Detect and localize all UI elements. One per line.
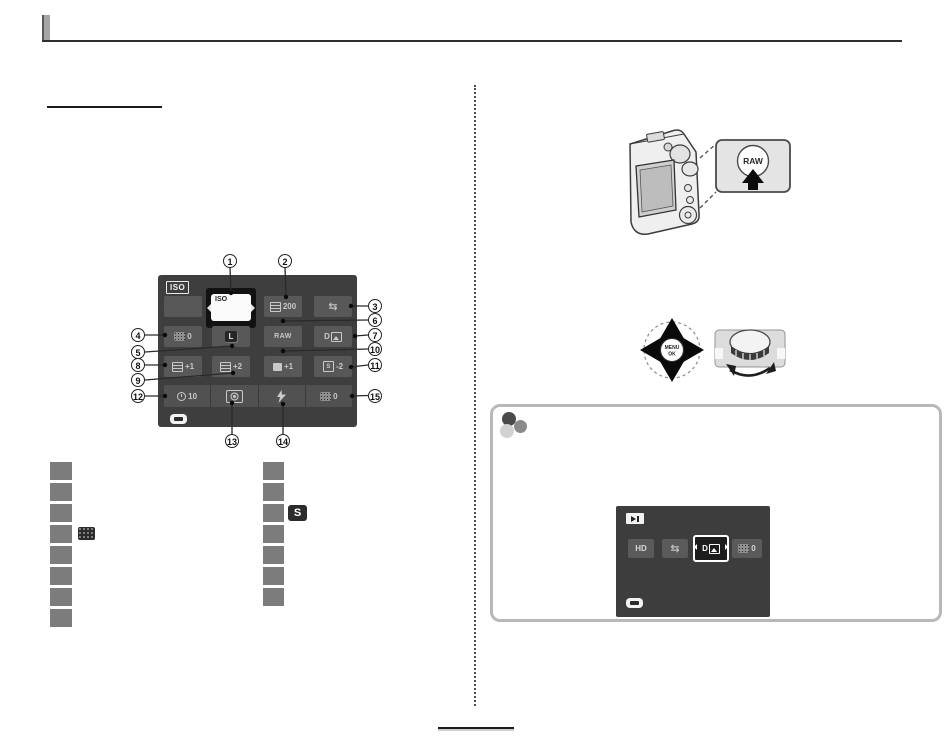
list-item-placeholder [263, 462, 284, 480]
rotate-arrow-icon [730, 368, 770, 376]
film-simulation-icon [670, 542, 679, 555]
selector-dial-figure: MENU OK [630, 310, 810, 395]
list-item-placeholder [50, 525, 72, 543]
playback-menu-screen: HD D 0 [616, 506, 770, 617]
list-item-placeholder [263, 588, 284, 606]
callout-12: 12 [131, 389, 145, 403]
noise-reduction-icon [738, 544, 749, 553]
menu-cell-grain-level: 0 [732, 539, 762, 558]
menu-cell-hd: HD [628, 539, 654, 558]
dynamic-range-icon: D [702, 544, 720, 554]
header-rule [42, 40, 902, 42]
list-item-placeholder [263, 504, 284, 522]
section-heading-underline [47, 106, 162, 108]
chapter-tab-bar [42, 15, 50, 41]
menu-ok-label-line2: OK [668, 352, 676, 358]
legend-list-right [263, 462, 284, 606]
camera-illustration [630, 130, 699, 234]
list-item-placeholder [50, 483, 72, 501]
callout-13: 13 [225, 434, 239, 448]
note-icon [500, 424, 514, 438]
list-item-placeholder [50, 462, 72, 480]
list-item-placeholder [263, 483, 284, 501]
callout-15: 15 [368, 389, 382, 403]
noise-reduction-icon [78, 527, 95, 540]
list-item-placeholder [50, 609, 72, 627]
raw-button-callout: RAW [716, 140, 790, 192]
callout-7: 7 [368, 328, 382, 342]
menu-cell-film-simulation [662, 539, 688, 558]
callout-14: 14 [276, 434, 290, 448]
left-arrow-icon [694, 544, 697, 550]
callout-dashed-lines [700, 144, 716, 208]
callout-8: 8 [131, 358, 145, 372]
callout-10: 10 [368, 342, 382, 356]
callout-11: 11 [368, 358, 382, 372]
battery-icon [626, 598, 643, 608]
callout-2: 2 [278, 254, 292, 268]
raw-button-label: RAW [743, 156, 764, 166]
menu-ok-label-line1: MENU [665, 345, 680, 351]
list-item-placeholder [263, 546, 284, 564]
list-item-placeholder [50, 588, 72, 606]
list-item-placeholder [50, 546, 72, 564]
callout-6: 6 [368, 313, 382, 327]
callout-lines [128, 250, 390, 455]
legend-list-left [50, 462, 72, 627]
note-icon [514, 420, 527, 433]
playback-mode-icon [626, 513, 644, 524]
list-item-placeholder [50, 567, 72, 585]
list-item-placeholder [50, 504, 72, 522]
command-dial-illustration [715, 330, 785, 376]
manual-page: { "figure_quick_menu": { "screen": { "is… [0, 0, 950, 741]
four-way-selector-illustration: MENU OK [640, 318, 704, 382]
callout-5: 5 [131, 345, 145, 359]
callout-3: 3 [368, 299, 382, 313]
raw-button-figure: RAW [600, 118, 815, 243]
list-item-placeholder [263, 525, 284, 543]
menu-cell-selected-dynamic-range: D [693, 535, 729, 562]
callout-4: 4 [131, 328, 145, 342]
page-number-rule [438, 727, 514, 729]
list-item-placeholder [263, 567, 284, 585]
sharpness-icon: S [288, 505, 307, 521]
callout-1: 1 [223, 254, 237, 268]
callout-9: 9 [131, 373, 145, 387]
quick-menu-figure: ISO ISO 200 0 L RAW D [128, 250, 390, 455]
right-arrow-icon [725, 544, 728, 550]
column-divider [474, 85, 476, 706]
